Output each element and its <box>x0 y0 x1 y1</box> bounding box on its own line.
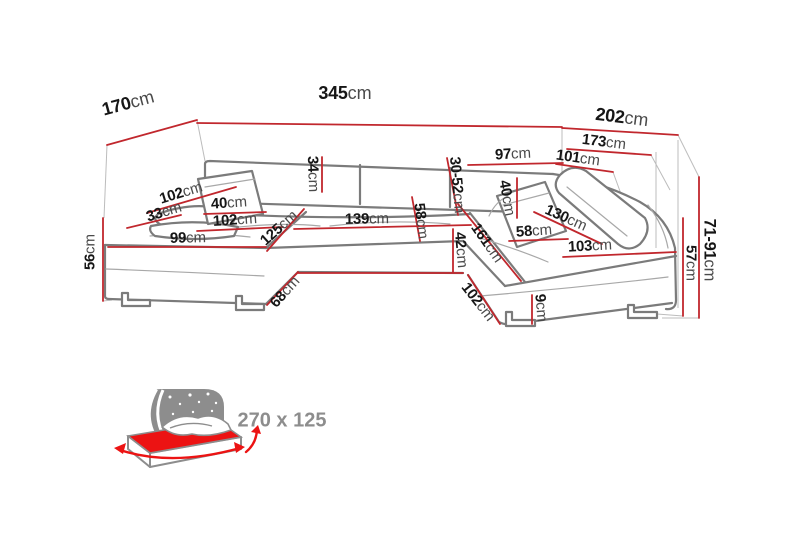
dim-label-42: 42cm <box>452 231 470 268</box>
dim-label-34: 34cm <box>305 156 321 193</box>
dim-label-345: 345cm <box>318 84 371 102</box>
dim-label-103: 103cm <box>568 237 613 254</box>
sofa-base <box>105 245 672 324</box>
dim-label-58-right: 58cm <box>515 222 552 239</box>
dim-label-139: 139cm <box>345 211 389 227</box>
dim-line-170 <box>107 120 197 145</box>
dim-label-57: 57cm <box>684 245 699 281</box>
sofa-legs <box>122 293 657 326</box>
dim-label-9: 9cm <box>532 293 549 322</box>
dim-label-97: 97cm <box>495 146 532 163</box>
dim-label-99: 99cm <box>170 230 206 246</box>
dim-label-40-left: 40cm <box>210 194 247 211</box>
dim-line-202 <box>562 128 678 135</box>
dim-label-56: 56cm <box>83 234 98 270</box>
dim-line-345 <box>197 123 562 127</box>
sleeping-area-size-label: 270 x 125 <box>238 410 327 433</box>
diagram-canvas <box>0 0 800 533</box>
dim-label-71-91: 71-91cm <box>701 219 718 282</box>
dim-label-58-mid: 58cm <box>411 202 430 240</box>
dim-label-102-seat: 102cm <box>212 211 257 229</box>
sofa-dimension-diagram: 170cm 345cm 202cm 173cm 97cm 101cm 102cm… <box>0 0 800 533</box>
dim-line-97 <box>468 163 563 165</box>
